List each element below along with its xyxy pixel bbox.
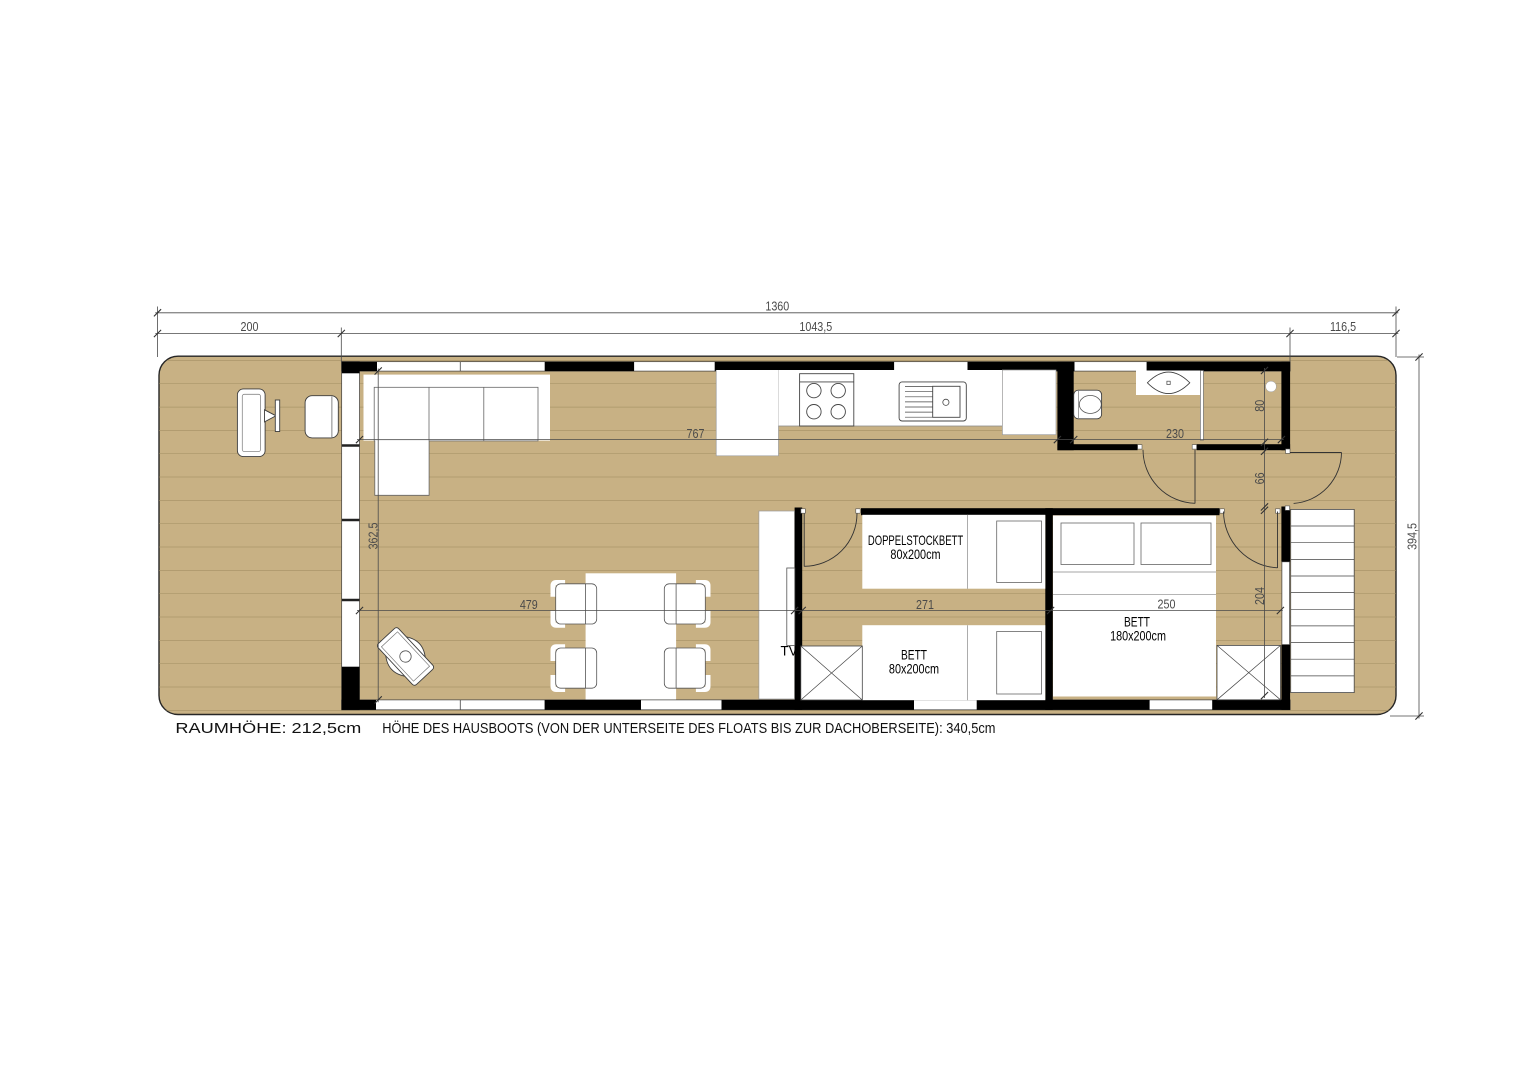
svg-text:362,5: 362,5 <box>367 523 381 550</box>
svg-text:250: 250 <box>1158 598 1176 612</box>
svg-text:479: 479 <box>520 598 538 612</box>
svg-text:1043,5: 1043,5 <box>799 320 832 334</box>
svg-text:180x200cm: 180x200cm <box>1110 628 1166 643</box>
svg-text:80: 80 <box>1253 399 1267 411</box>
svg-text:230: 230 <box>1166 427 1184 441</box>
svg-text:80x200cm: 80x200cm <box>890 547 940 562</box>
svg-text:767: 767 <box>687 427 705 441</box>
svg-text:RAUMHÖHE: 212,5cm: RAUMHÖHE: 212,5cm <box>175 721 361 737</box>
svg-text:204: 204 <box>1253 587 1267 605</box>
svg-text:271: 271 <box>916 598 934 612</box>
svg-text:TV: TV <box>781 644 798 659</box>
svg-text:HÖHE DES HAUSBOOTS (VON DER UN: HÖHE DES HAUSBOOTS (VON DER UNTERSEITE D… <box>382 720 995 736</box>
svg-text:1360: 1360 <box>765 300 789 314</box>
svg-text:394,5: 394,5 <box>1406 523 1420 550</box>
svg-text:200: 200 <box>241 320 259 334</box>
svg-text:116,5: 116,5 <box>1330 320 1356 334</box>
svg-text:66: 66 <box>1253 472 1267 484</box>
svg-text:80x200cm: 80x200cm <box>889 661 939 676</box>
